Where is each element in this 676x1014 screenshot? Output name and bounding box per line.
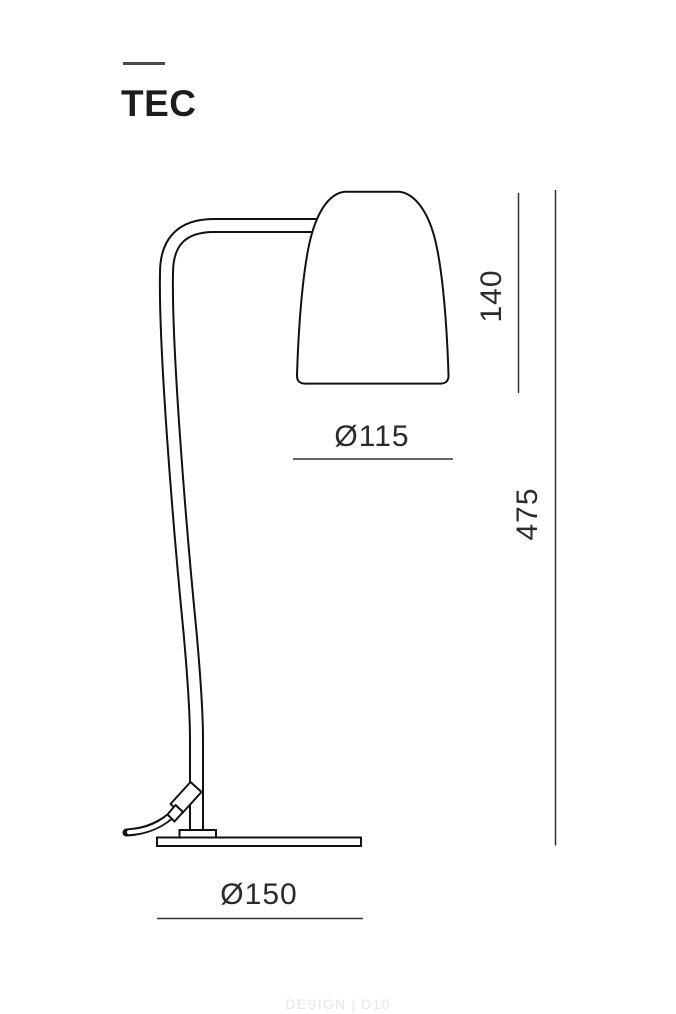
lamp-base-plate (157, 838, 361, 847)
dimension-label-shade-diameter: Ø115 (334, 420, 409, 454)
dimension-label-total-height: 475 (511, 487, 545, 540)
lamp-technical-drawing (0, 0, 676, 1014)
spec-sheet-page: TEC 140 475 Ø115 Ø150 DESIGN (0, 0, 676, 1014)
lamp-arm-tube (166, 226, 322, 835)
dimension-label-base-diameter: Ø150 (220, 878, 297, 912)
footer-credit: DESIGN | D10 (285, 996, 390, 1012)
dimension-label-shade-height: 140 (475, 269, 509, 322)
lamp-shade (297, 192, 449, 384)
